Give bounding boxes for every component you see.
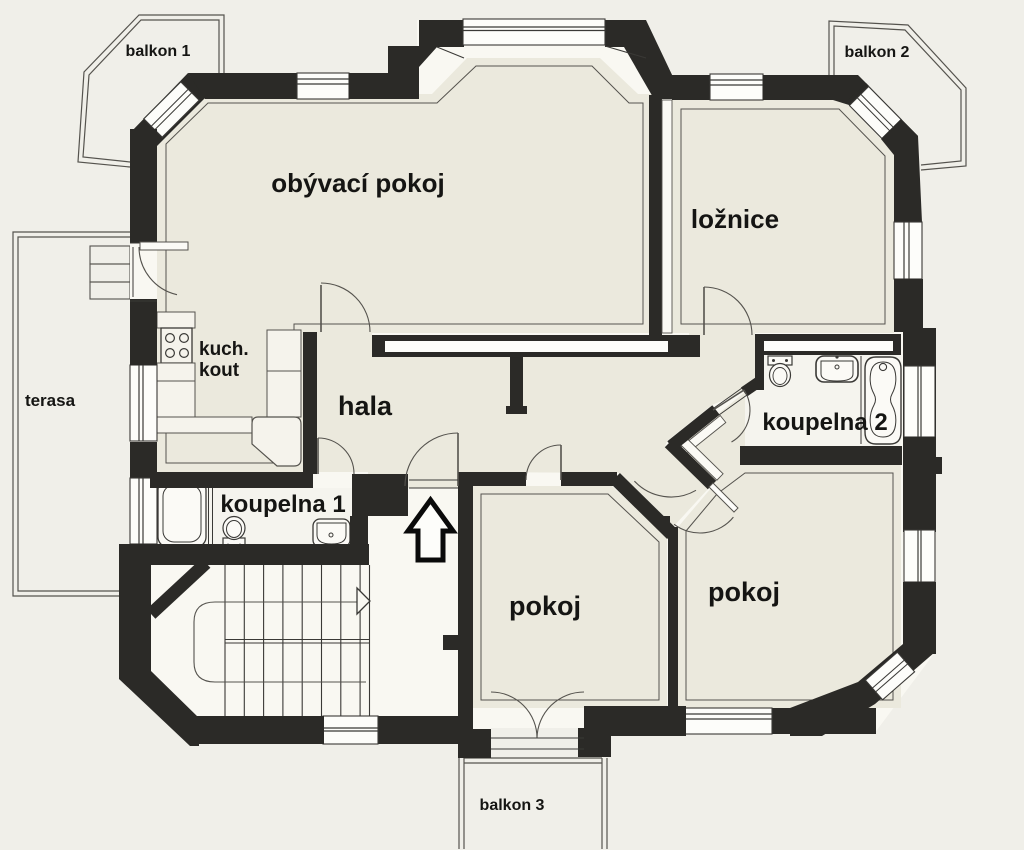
svg-text:balkon 3: balkon 3 — [480, 797, 545, 814]
svg-text:hala: hala — [338, 391, 393, 421]
svg-text:kout: kout — [199, 360, 240, 381]
svg-text:koupelna 2: koupelna 2 — [762, 409, 887, 436]
svg-text:balkon 2: balkon 2 — [845, 44, 910, 61]
svg-text:koupelna 1: koupelna 1 — [220, 491, 345, 518]
svg-text:kuch.: kuch. — [199, 339, 249, 360]
svg-text:balkon 1: balkon 1 — [126, 43, 191, 60]
svg-text:pokoj: pokoj — [708, 577, 780, 607]
svg-text:pokoj: pokoj — [509, 591, 581, 621]
svg-text:ložnice: ložnice — [691, 204, 779, 234]
svg-text:terasa: terasa — [25, 391, 76, 410]
svg-text:obývací pokoj: obývací pokoj — [271, 168, 444, 198]
